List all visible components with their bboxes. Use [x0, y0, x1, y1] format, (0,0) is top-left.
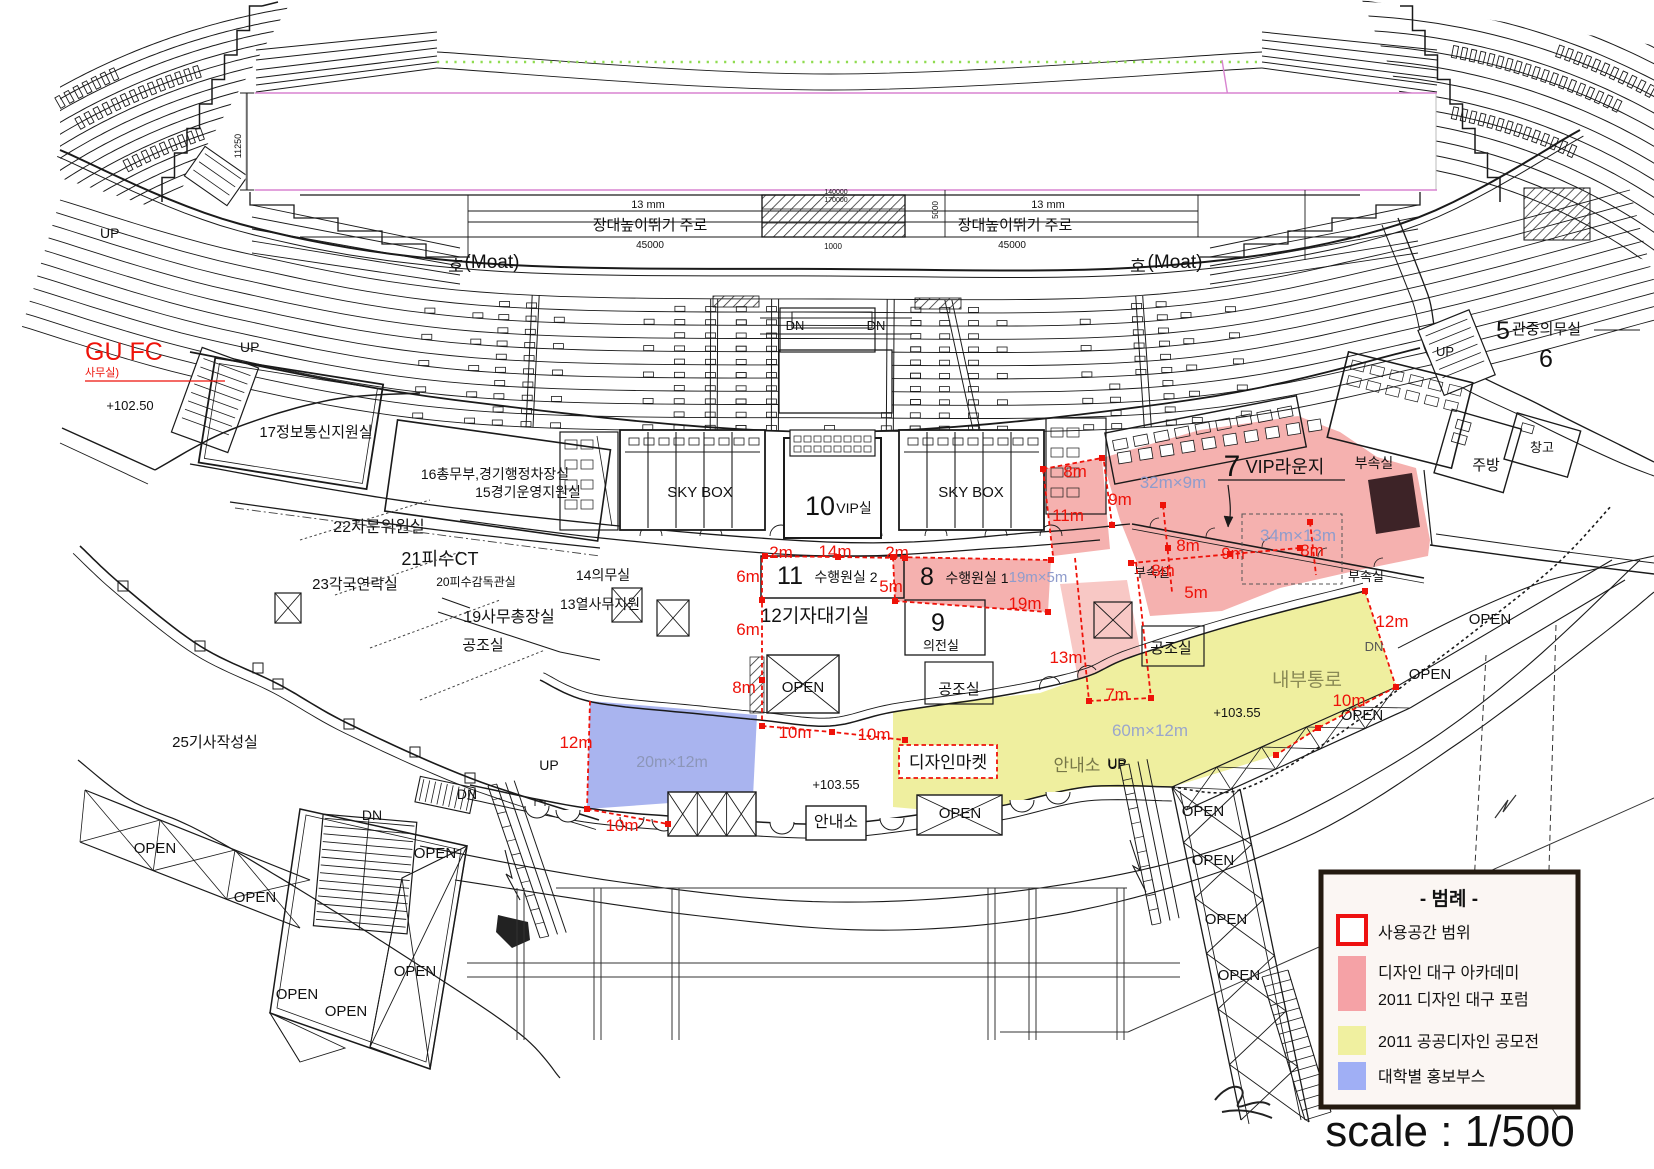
svg-text:OPEN: OPEN [414, 845, 457, 862]
svg-text:13 mm: 13 mm [631, 199, 665, 211]
svg-text:OPEN: OPEN [1182, 803, 1225, 820]
svg-text:8: 8 [920, 563, 934, 591]
svg-text:OPEN: OPEN [1409, 666, 1452, 683]
svg-text:GU FC: GU FC [85, 338, 163, 366]
svg-text:19사무총장실: 19사무총장실 [463, 608, 554, 626]
svg-text:OPEN: OPEN [1205, 911, 1248, 928]
svg-text:디자인마켓: 디자인마켓 [909, 753, 987, 772]
svg-text:11m: 11m [1052, 506, 1084, 525]
svg-text:OPEN: OPEN [782, 679, 825, 696]
svg-text:6m: 6m [736, 620, 760, 639]
svg-text:12m: 12m [559, 733, 592, 752]
svg-text:8m: 8m [1151, 561, 1175, 580]
svg-text:DN: DN [1365, 639, 1384, 654]
svg-text:2011 디자인 대구 포럼: 2011 디자인 대구 포럼 [1378, 991, 1529, 1009]
svg-text:공조실: 공조실 [938, 681, 979, 698]
svg-text:SKY BOX: SKY BOX [938, 484, 1004, 501]
svg-text:+103.55: +103.55 [812, 777, 859, 792]
svg-text:VIP라운지: VIP라운지 [1246, 457, 1325, 477]
svg-text:사무실): 사무실) [85, 366, 119, 379]
svg-text:OPEN: OPEN [234, 889, 277, 906]
svg-text:6: 6 [1539, 345, 1553, 373]
svg-text:2m: 2m [885, 543, 909, 562]
svg-text:10m: 10m [778, 723, 811, 742]
svg-text:관중의무실: 관중의무실 [1512, 321, 1581, 338]
svg-text:10: 10 [805, 491, 835, 521]
svg-text:DN: DN [457, 786, 477, 802]
svg-text:2011 공공디자인 공모전: 2011 공공디자인 공모전 [1378, 1033, 1539, 1051]
svg-text:부속실: 부속실 [1348, 569, 1384, 584]
svg-text:5: 5 [1496, 317, 1510, 345]
svg-text:12m: 12m [1375, 612, 1408, 631]
svg-text:6m: 6m [736, 567, 760, 586]
svg-text:20m×12m: 20m×12m [636, 754, 708, 771]
svg-text:OPEN: OPEN [134, 840, 177, 857]
svg-text:17정보통신지원실: 17정보통신지원실 [259, 424, 372, 441]
svg-text:OPEN: OPEN [276, 986, 319, 1003]
svg-text:호: 호 [448, 257, 464, 276]
svg-text:9m: 9m [1221, 544, 1245, 563]
svg-text:11250: 11250 [233, 134, 243, 158]
svg-text:- 범례 -: - 범례 - [1420, 888, 1478, 910]
svg-text:OPEN: OPEN [394, 963, 437, 980]
svg-text:13m: 13m [1049, 648, 1082, 667]
svg-text:OPEN: OPEN [1192, 852, 1235, 869]
svg-text:장대높이뛰기 주로: 장대높이뛰기 주로 [593, 217, 708, 234]
svg-text:UP: UP [100, 225, 119, 241]
svg-text:장대높이뛰기 주로: 장대높이뛰기 주로 [958, 217, 1073, 234]
svg-text:13 mm: 13 mm [1031, 199, 1065, 211]
svg-text:9: 9 [931, 609, 945, 637]
svg-text:20피수감독관실: 20피수감독관실 [436, 575, 516, 589]
svg-text:수행원실 1: 수행원실 1 [945, 570, 1008, 586]
svg-text:170000: 170000 [824, 197, 847, 204]
svg-text:10m: 10m [1332, 691, 1365, 710]
svg-text:공조실: 공조실 [462, 637, 503, 654]
svg-text:8m: 8m [1176, 536, 1200, 555]
svg-text:+103.55: +103.55 [1213, 705, 1260, 720]
svg-text:사용공간 범위: 사용공간 범위 [1378, 924, 1471, 942]
svg-text:부속실: 부속실 [1355, 455, 1394, 471]
svg-text:10m: 10m [857, 725, 890, 744]
svg-text:UP: UP [1436, 344, 1454, 359]
svg-text:14의무실: 14의무실 [576, 567, 630, 583]
svg-text:창고: 창고 [1530, 440, 1554, 455]
svg-text:내부통로: 내부통로 [1272, 669, 1342, 691]
svg-text:주방: 주방 [1472, 457, 1500, 474]
svg-text:(Moat): (Moat) [1148, 252, 1203, 273]
svg-text:호: 호 [1130, 257, 1146, 276]
svg-text:14m: 14m [818, 542, 851, 561]
svg-text:2m: 2m [769, 543, 793, 562]
svg-text:안내소: 안내소 [1054, 756, 1101, 775]
svg-text:5m: 5m [879, 577, 903, 596]
svg-text:OPEN: OPEN [325, 1003, 368, 1020]
svg-text:16총무부,경기행정차장실: 16총무부,경기행정차장실 [421, 466, 569, 482]
svg-text:34m×13m: 34m×13m [1260, 526, 1336, 545]
svg-text:7: 7 [1224, 450, 1241, 483]
svg-text:1000: 1000 [824, 242, 842, 251]
svg-text:10m: 10m [605, 816, 638, 835]
svg-text:DN: DN [867, 318, 886, 333]
svg-text:OPEN: OPEN [939, 805, 982, 822]
svg-text:OPEN: OPEN [1469, 611, 1512, 628]
svg-text:8m: 8m [732, 678, 756, 697]
svg-text:19m×5m: 19m×5m [1009, 569, 1068, 586]
svg-text:UP: UP [1108, 757, 1126, 772]
svg-text:DN: DN [362, 807, 382, 823]
svg-text:UP: UP [539, 757, 558, 773]
svg-text:5m: 5m [1184, 583, 1208, 602]
svg-text:9m: 9m [1108, 490, 1132, 509]
svg-text:8m: 8m [1063, 462, 1087, 481]
svg-text:대학별 홍보부스: 대학별 홍보부스 [1378, 1068, 1486, 1086]
svg-text:안내소: 안내소 [814, 813, 858, 831]
svg-text:19m: 19m [1008, 594, 1041, 613]
svg-text:12기자대기실: 12기자대기실 [761, 605, 870, 627]
svg-text:32m×9m: 32m×9m [1140, 473, 1207, 492]
svg-text:45000: 45000 [636, 240, 664, 251]
svg-text:디자인 대구 아카데미: 디자인 대구 아카데미 [1378, 964, 1519, 982]
svg-text:DN: DN [786, 318, 805, 333]
svg-text:수행원실 2: 수행원실 2 [814, 569, 877, 585]
svg-text:60m×12m: 60m×12m [1112, 721, 1188, 740]
svg-text:25기사작성실: 25기사작성실 [172, 734, 258, 751]
svg-text:VIP실: VIP실 [836, 500, 871, 516]
svg-text:(Moat): (Moat) [465, 252, 520, 273]
svg-text:5000: 5000 [931, 201, 940, 219]
svg-text:45000: 45000 [998, 240, 1026, 251]
svg-text:15경기운영지원실: 15경기운영지원실 [475, 484, 581, 500]
svg-text:23각국연락실: 23각국연락실 [312, 576, 398, 593]
svg-text:scale : 1/500: scale : 1/500 [1325, 1107, 1575, 1156]
svg-text:7m: 7m [1105, 685, 1129, 704]
svg-text:UP: UP [240, 339, 259, 355]
svg-text:SKY BOX: SKY BOX [667, 484, 733, 501]
svg-text:+102.50: +102.50 [106, 398, 153, 413]
svg-text:의전실: 의전실 [923, 638, 959, 653]
svg-text:140000: 140000 [824, 189, 847, 196]
svg-text:11: 11 [777, 562, 803, 590]
